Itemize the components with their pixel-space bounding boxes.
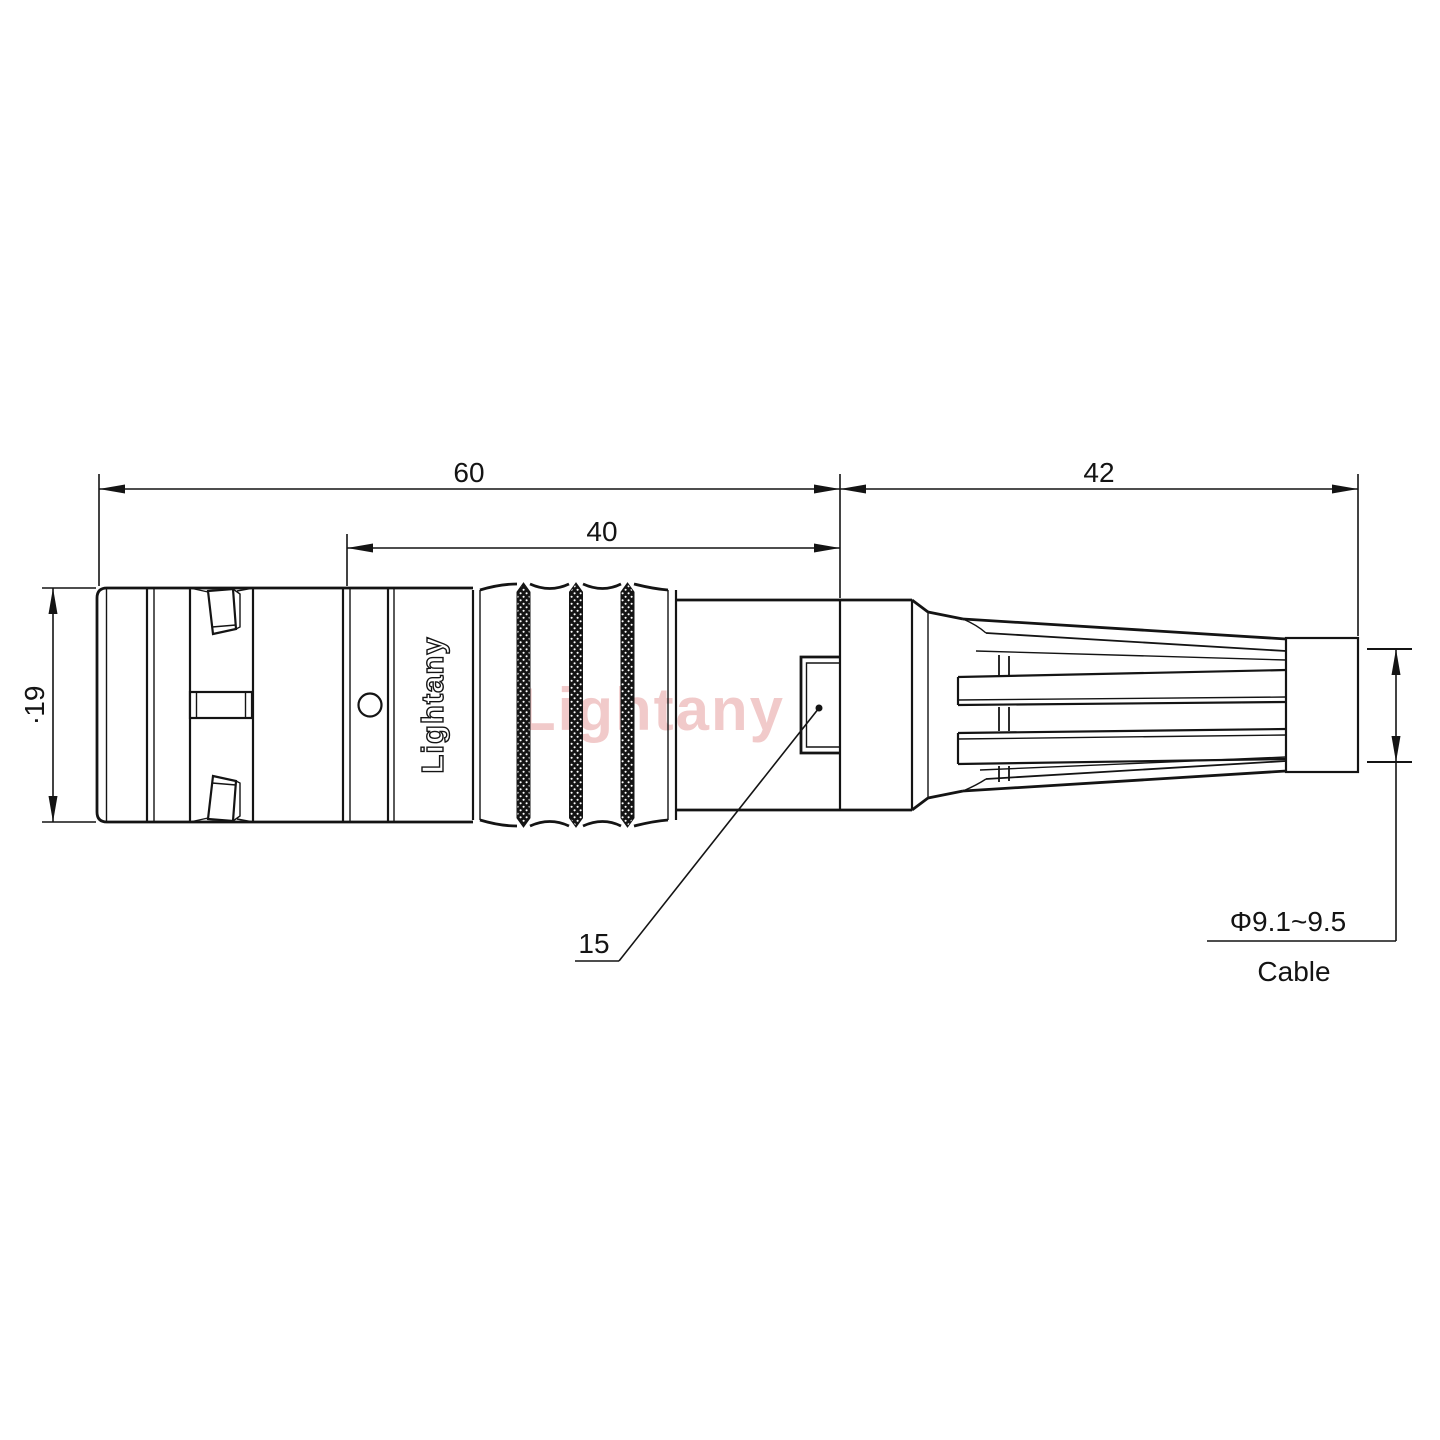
knurl-band-2	[570, 583, 583, 827]
cable-end-cap	[1286, 638, 1358, 772]
dimension-15-label: 15	[578, 928, 609, 959]
middle-slot	[190, 692, 252, 718]
dimension-40-label: 40	[586, 516, 617, 547]
body-marking-text: Lightany	[415, 636, 450, 773]
technical-drawing-page: Lightany	[0, 0, 1440, 1440]
watermark-text: Lightany	[519, 676, 785, 743]
cable-diameter-label: Φ9.1~9.5	[1230, 906, 1347, 937]
dimension-42-label: 42	[1083, 457, 1114, 488]
knurl-band-3	[621, 583, 634, 827]
connector-dimension-drawing: Lightany	[0, 0, 1440, 1440]
main-body: Lightany	[415, 636, 450, 773]
knurl-band-1	[517, 583, 530, 827]
dimension-60-label: 60	[453, 457, 484, 488]
cable-label: Cable	[1257, 956, 1330, 987]
vent-hole	[359, 694, 382, 717]
dimension-dia19-label: ∙19	[19, 686, 50, 725]
